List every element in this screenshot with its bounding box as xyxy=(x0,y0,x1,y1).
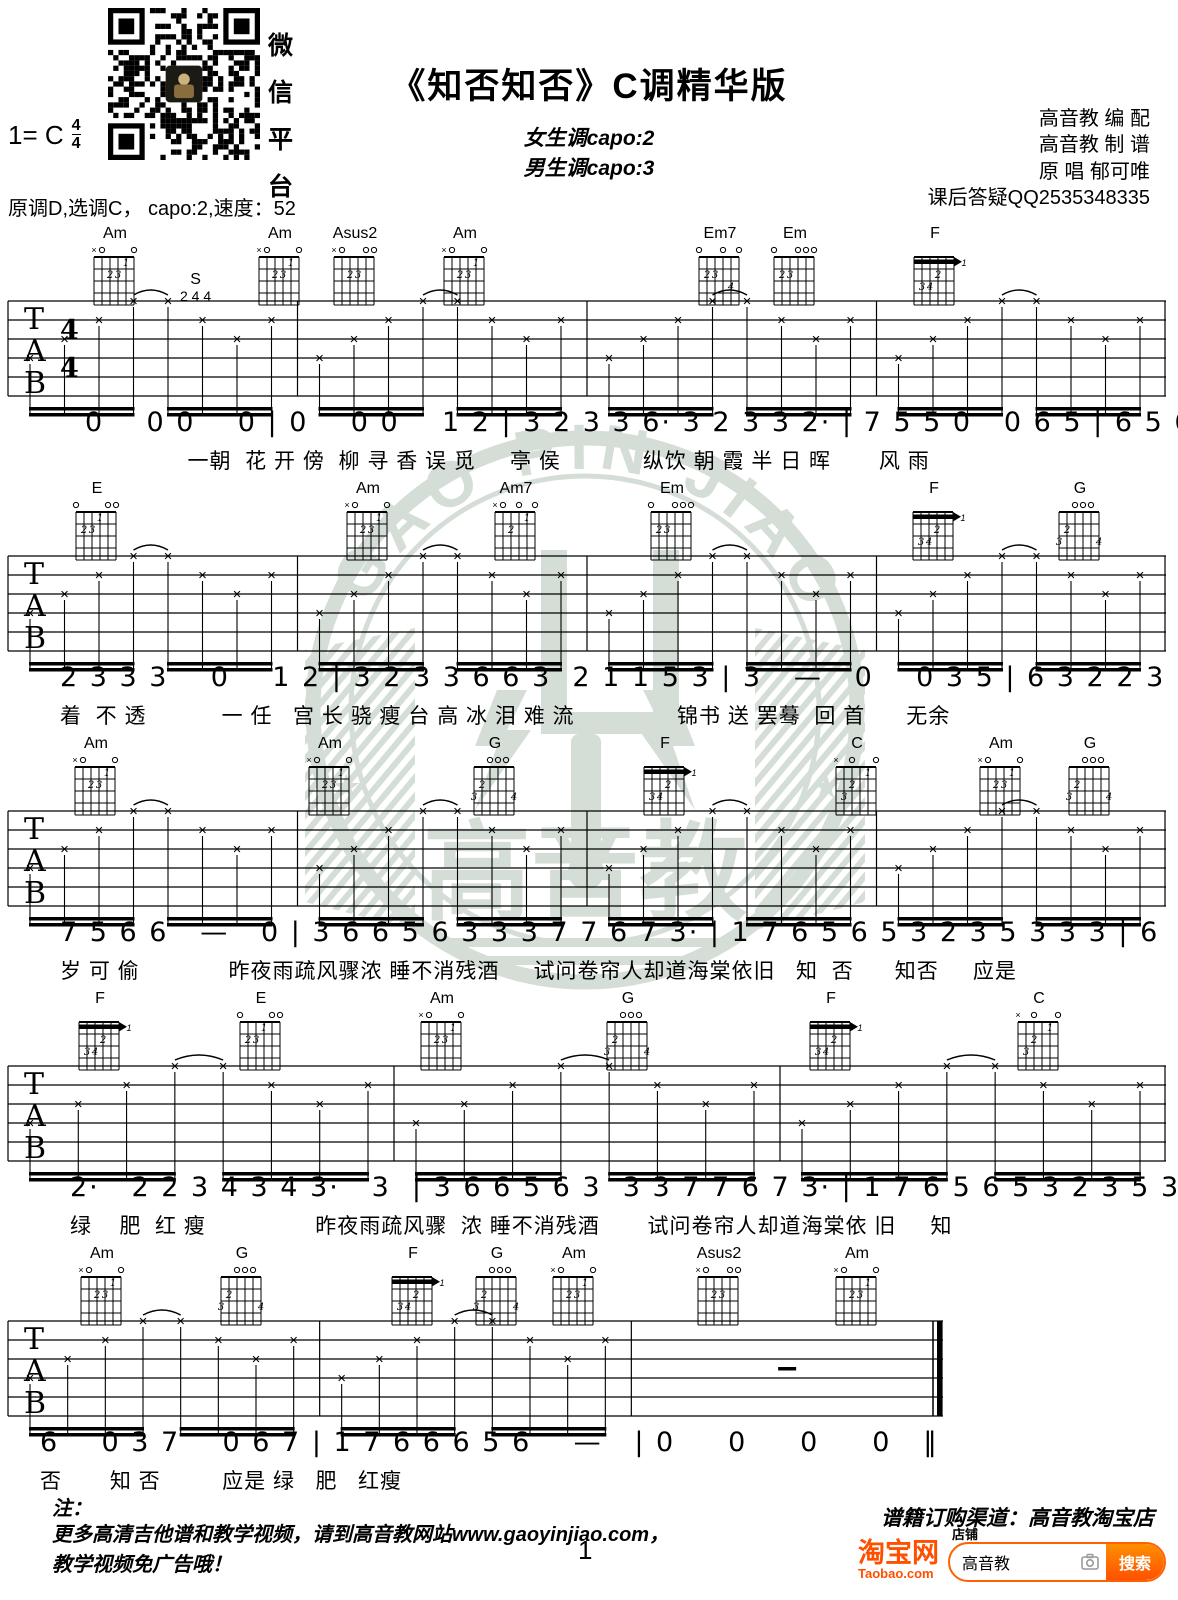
svg-text:3: 3 xyxy=(102,1290,108,1301)
chord-name: G xyxy=(1059,735,1121,753)
svg-text:4: 4 xyxy=(60,353,79,384)
svg-text:1: 1 xyxy=(439,1278,444,1288)
credit-line: 高音教 编 配 xyxy=(928,106,1150,132)
svg-text:2: 2 xyxy=(225,1290,232,1301)
tab-staff: TAB×××××××××××××××××××××××× xyxy=(8,1052,1178,1188)
svg-text:T: T xyxy=(24,1067,44,1102)
svg-text:T: T xyxy=(24,557,44,592)
svg-text:B: B xyxy=(24,1386,46,1421)
tab-staff: TAB×××××××××××××××××××××××××××××××× xyxy=(8,542,1178,678)
chord-name: G xyxy=(464,735,526,753)
svg-text:2: 2 xyxy=(507,525,514,536)
chord-name: C xyxy=(826,735,888,753)
svg-text:2: 2 xyxy=(565,1290,572,1301)
credit-line: 原 唱 郁可唯 xyxy=(928,159,1150,185)
svg-text:3: 3 xyxy=(355,270,361,281)
tab-staff: TAB×××××××××××××××××××××××××××××××× xyxy=(8,797,1178,933)
svg-text:1: 1 xyxy=(97,513,103,524)
svg-text:3: 3 xyxy=(253,1035,259,1046)
svg-text:2: 2 xyxy=(1063,525,1070,536)
footer-note-label: 注： xyxy=(52,1492,92,1521)
svg-text:×: × xyxy=(977,755,982,765)
page-title: 《知否知否》C调精华版 xyxy=(0,58,1178,109)
svg-text:2: 2 xyxy=(848,780,855,791)
svg-text:1: 1 xyxy=(450,1023,456,1034)
chord-name: Asus2 xyxy=(324,225,386,243)
svg-text:3: 3 xyxy=(719,1290,725,1301)
svg-text:×: × xyxy=(306,755,311,765)
svg-text:B: B xyxy=(24,621,46,656)
svg-text:1: 1 xyxy=(691,768,696,778)
svg-text:3: 3 xyxy=(330,780,336,791)
svg-text:1: 1 xyxy=(261,1023,267,1034)
svg-text:×: × xyxy=(550,1265,555,1275)
footer-note-line2: 教学视频免广告哦！ xyxy=(52,1548,232,1577)
svg-text:1: 1 xyxy=(1009,768,1015,779)
chord-name: E xyxy=(66,480,128,498)
svg-text:2: 2 xyxy=(611,1035,618,1046)
lyrics-line: 着 不 透 一 任 宫 长 骁 瘦 台 高 冰 泪 难 流 锦书 送 罢蓦 回 … xyxy=(60,700,950,730)
system-1: Am×231Am×231Asus2×23Am×231Em7234Em23F123… xyxy=(0,225,1178,480)
svg-text:3: 3 xyxy=(465,270,471,281)
svg-text:1: 1 xyxy=(104,768,110,779)
chord-name: Am xyxy=(970,735,1032,753)
svg-text:2: 2 xyxy=(321,780,328,791)
svg-text:2: 2 xyxy=(244,1035,251,1046)
chord-name: Am xyxy=(65,735,127,753)
svg-text:×: × xyxy=(833,755,838,765)
svg-text:3: 3 xyxy=(368,525,374,536)
svg-text:B: B xyxy=(24,1131,46,1166)
svg-text:1: 1 xyxy=(865,768,871,779)
tab-staff: TAB×××××××××××××××× xyxy=(8,1307,955,1443)
key-signature: 1= C 4 4 xyxy=(8,118,81,152)
svg-text:3: 3 xyxy=(664,525,670,536)
key-text: 1= C xyxy=(8,120,64,151)
svg-text:2: 2 xyxy=(271,270,278,281)
chord-name: Am xyxy=(299,735,361,753)
jianpu-line: 2 3 3 3 0 1 2 | 3 2 3 3 6 6 3 2 1 1 5 3 … xyxy=(60,662,1178,693)
svg-text:×: × xyxy=(695,1265,700,1275)
credit-line: 课后答疑QQ2535348335 xyxy=(928,185,1150,211)
svg-text:×: × xyxy=(492,500,497,510)
score-page: 微信平台 《知否知否》C调精华版 女生调capo:2 男生调capo:3 1= … xyxy=(0,0,1178,1600)
segno-numbers: 2 4 4 xyxy=(180,289,211,304)
svg-text:3: 3 xyxy=(280,270,286,281)
system-2: E231Am×231Am7×21Em23F1234G234TAB××××××××… xyxy=(0,480,1178,735)
svg-text:T: T xyxy=(24,812,44,847)
svg-text:×: × xyxy=(331,245,336,255)
chord-name: Am xyxy=(249,225,311,243)
svg-text:1: 1 xyxy=(857,1023,862,1033)
svg-text:3: 3 xyxy=(89,525,95,536)
svg-text:2: 2 xyxy=(478,780,485,791)
svg-text:×: × xyxy=(78,1265,83,1275)
svg-text:×: × xyxy=(1015,1010,1020,1020)
svg-text:2: 2 xyxy=(655,525,662,536)
jianpu-line: 2· 2 2 3 4 3 4 3· 3 | 3 6 6 5 6 3 3 3 7 … xyxy=(70,1172,1178,1203)
svg-text:2: 2 xyxy=(703,270,710,281)
taobao-search-button[interactable]: 搜索 xyxy=(1106,1544,1164,1580)
system-5: Am×231G234F1234G234Am×231Asus2×23Am×231T… xyxy=(0,1245,1178,1500)
svg-text:×: × xyxy=(91,245,96,255)
chord-name: F xyxy=(634,735,696,753)
svg-text:×: × xyxy=(344,500,349,510)
svg-text:2: 2 xyxy=(1073,780,1080,791)
svg-text:1: 1 xyxy=(1047,1023,1053,1034)
chord-name: Am xyxy=(543,1245,605,1263)
svg-text:3: 3 xyxy=(574,1290,580,1301)
svg-text:2: 2 xyxy=(480,1290,487,1301)
chord-name: Am xyxy=(71,1245,133,1263)
svg-text:2: 2 xyxy=(359,525,366,536)
chord-name: F xyxy=(382,1245,444,1263)
svg-text:×: × xyxy=(256,245,261,255)
jianpu-line: 7 5 6 6 — 0 | 3 6 6 5 6 3 3 3 7 7 6 7 3·… xyxy=(60,917,1178,948)
svg-text:2: 2 xyxy=(830,1035,837,1046)
footer-note-line1: 更多高清吉他谱和教学视频，请到高音教网站www.gaoyinjiao.com， xyxy=(52,1518,669,1547)
chord-name: Am xyxy=(84,225,146,243)
lyrics-line: 一朝 花 开 傍 柳 寻 香 误 觅 亭 侯 纵饮 朝 霞 半 日 晖 风 雨 xyxy=(85,445,930,475)
svg-text:2: 2 xyxy=(346,270,353,281)
svg-text:×: × xyxy=(72,755,77,765)
chord-name: Am7 xyxy=(485,480,547,498)
credits: 高音教 编 配高音教 制 谱原 唱 郁可唯课后答疑QQ2535348335 xyxy=(928,106,1150,212)
taobao-search-input[interactable]: 高音教 xyxy=(950,1550,1080,1574)
lyrics-line: 否 知 否 应是 绿 肥 红瘦 xyxy=(40,1465,402,1495)
jianpu-line: 6 0 3 7 0 6 7 | 1 7 6 6 6 5 6 — | 0 0 0 … xyxy=(40,1427,939,1458)
chord-name: F xyxy=(69,990,131,1008)
svg-text:1: 1 xyxy=(110,1278,116,1289)
segno-letter: S xyxy=(180,271,211,289)
chord-name: F xyxy=(904,225,966,243)
svg-text:2: 2 xyxy=(848,1290,855,1301)
chord-name: Am xyxy=(411,990,473,1008)
qr-caption-char: 微 xyxy=(268,26,293,62)
svg-text:2: 2 xyxy=(87,780,94,791)
svg-text:2: 2 xyxy=(412,1290,419,1301)
chord-name: Em xyxy=(641,480,703,498)
chord-name: Am xyxy=(434,225,496,243)
svg-text:2: 2 xyxy=(106,270,113,281)
order-channel-text: 谱籍订购渠道：高音教淘宝店 xyxy=(881,1502,1154,1532)
tuning-note: 原调D,选调C， capo:2,速度：52 xyxy=(8,192,296,221)
svg-text:3: 3 xyxy=(1001,780,1007,791)
svg-text:2: 2 xyxy=(93,1290,100,1301)
svg-text:1: 1 xyxy=(288,258,294,269)
page-number: 1 xyxy=(578,1535,592,1566)
svg-text:1: 1 xyxy=(126,1023,131,1033)
svg-text:3: 3 xyxy=(115,270,121,281)
svg-text:1: 1 xyxy=(960,513,965,523)
tab-staff: TAB44×××××××××××××××××××××××××××××××× xyxy=(8,287,1178,423)
svg-text:2: 2 xyxy=(664,780,671,791)
svg-text:2: 2 xyxy=(1030,1035,1037,1046)
svg-text:B: B xyxy=(24,366,46,401)
svg-text:2: 2 xyxy=(99,1035,106,1046)
taobao-search-bar[interactable]: 高音教 搜索 xyxy=(948,1542,1166,1582)
svg-text:2: 2 xyxy=(80,525,87,536)
svg-text:1: 1 xyxy=(376,513,382,524)
chord-name: Am xyxy=(826,1245,888,1263)
chord-name: Em7 xyxy=(689,225,751,243)
segno-annotation: S2 4 4 xyxy=(180,271,211,304)
chord-name: C xyxy=(1008,990,1070,1008)
svg-text:1: 1 xyxy=(865,1278,871,1289)
system-3: Am×231Am×231G234F1234C×321Am×231G234TAB×… xyxy=(0,735,1178,990)
svg-text:3: 3 xyxy=(442,1035,448,1046)
svg-text:2: 2 xyxy=(433,1035,440,1046)
jianpu-line: 0 0 0 0 | 0 0 0 1 2 | 3 2 3 3 6· 3 2 3 3… xyxy=(85,407,1178,438)
svg-text:1: 1 xyxy=(473,258,479,269)
svg-text:2: 2 xyxy=(778,270,785,281)
chord-name: E xyxy=(230,990,292,1008)
taobao-logo: 淘宝网 Taobao.com xyxy=(858,1540,939,1580)
svg-text:1: 1 xyxy=(524,513,530,524)
svg-text:2: 2 xyxy=(933,525,940,536)
svg-text:2: 2 xyxy=(456,270,463,281)
time-signature: 4 4 xyxy=(72,118,81,152)
svg-text:×: × xyxy=(418,1010,423,1020)
svg-text:3: 3 xyxy=(857,1290,863,1301)
lyrics-line: 岁 可 偷 昨夜雨疏风骤浓 睡不消残酒 试问卷帘人却道海棠依旧 知 否 知否 应… xyxy=(60,955,1017,985)
svg-text:T: T xyxy=(24,1322,44,1357)
svg-text:3: 3 xyxy=(712,270,718,281)
svg-text:1: 1 xyxy=(338,768,344,779)
chord-name: Asus2 xyxy=(688,1245,750,1263)
svg-text:×: × xyxy=(833,1265,838,1275)
chord-name: G xyxy=(597,990,659,1008)
chord-name: F xyxy=(903,480,965,498)
taobao-shop-tab[interactable]: 店铺 xyxy=(952,1524,978,1543)
svg-text:2: 2 xyxy=(934,270,941,281)
svg-text:×: × xyxy=(441,245,446,255)
chord-name: F xyxy=(800,990,862,1008)
system-4: F1234E231Am×231G234F1234C×321TAB××××××××… xyxy=(0,990,1178,1245)
svg-text:2: 2 xyxy=(992,780,999,791)
svg-text:2: 2 xyxy=(710,1290,717,1301)
chord-name: G xyxy=(1049,480,1111,498)
svg-text:3: 3 xyxy=(96,780,102,791)
lyrics-line: 绿 肥 红 瘦 昨夜雨疏风骤 浓 睡不消残酒 试问卷帘人却道海棠依 旧 知 xyxy=(70,1210,953,1240)
credit-line: 高音教 制 谱 xyxy=(928,132,1150,158)
chord-name: Em xyxy=(764,225,826,243)
chord-name: Am xyxy=(337,480,399,498)
svg-text:T: T xyxy=(24,302,44,337)
chord-name: G xyxy=(211,1245,273,1263)
svg-text:1: 1 xyxy=(123,258,129,269)
svg-text:B: B xyxy=(24,876,46,911)
chord-name: G xyxy=(466,1245,528,1263)
camera-icon[interactable] xyxy=(1080,1553,1100,1571)
svg-text:3: 3 xyxy=(787,270,793,281)
svg-text:1: 1 xyxy=(961,258,966,268)
svg-text:1: 1 xyxy=(582,1278,588,1289)
